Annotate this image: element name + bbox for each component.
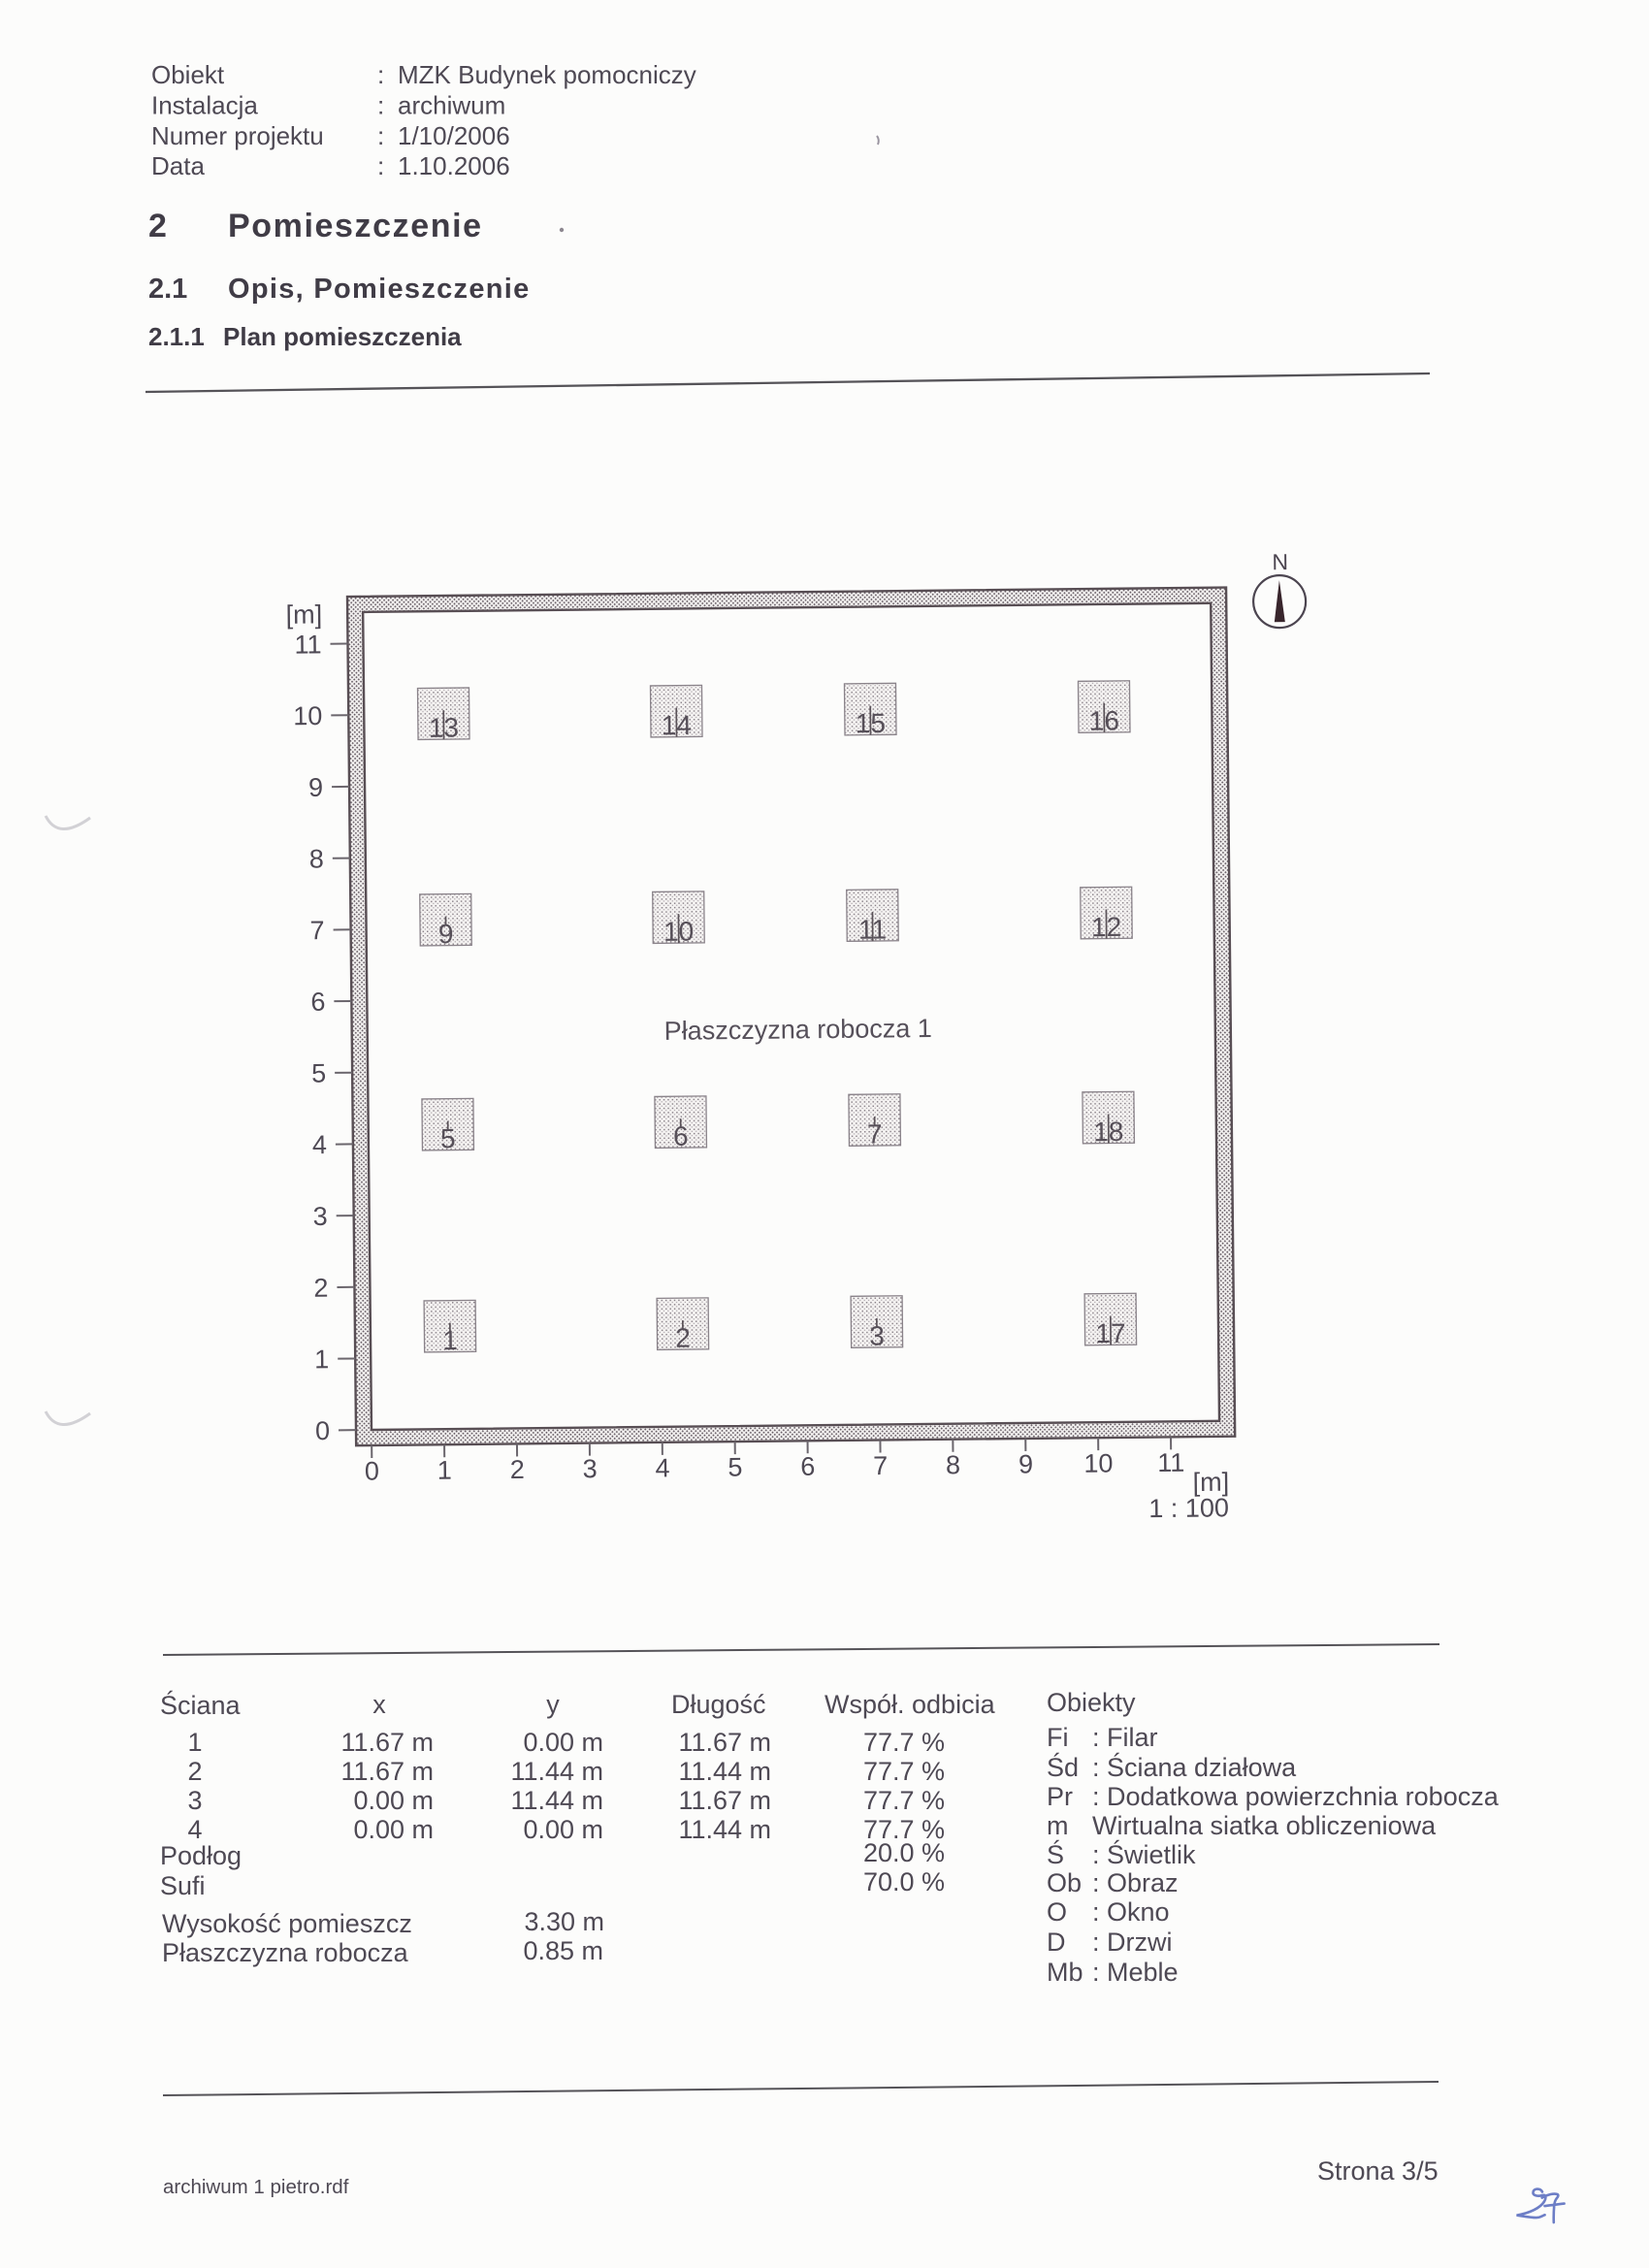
svg-text:4: 4 xyxy=(187,1815,202,1844)
svg-text:10: 10 xyxy=(663,916,694,946)
svg-text:0.00 m: 0.00 m xyxy=(353,1815,434,1844)
svg-text:Pomieszczenie: Pomieszczenie xyxy=(228,208,483,244)
svg-text:11.67 m: 11.67 m xyxy=(678,1786,771,1815)
svg-text:Podłog: Podłog xyxy=(160,1841,242,1870)
svg-text:7: 7 xyxy=(309,916,324,945)
svg-text:Współ. odbicia: Współ. odbicia xyxy=(824,1690,996,1719)
svg-text:11: 11 xyxy=(294,630,321,659)
svg-text:2: 2 xyxy=(148,208,167,244)
svg-text:10: 10 xyxy=(1083,1448,1113,1477)
svg-text:Płaszczyzna robocza: Płaszczyzna robocza xyxy=(162,1938,409,1967)
svg-text:16: 16 xyxy=(1089,705,1119,735)
svg-text:13: 13 xyxy=(429,713,459,743)
svg-text:17: 17 xyxy=(1095,1318,1125,1348)
svg-text:20.0 %: 20.0 % xyxy=(863,1838,945,1867)
svg-text::: : xyxy=(377,151,384,180)
svg-text:MZK Budynek pomocniczy: MZK Budynek pomocniczy xyxy=(398,60,696,89)
svg-text:Śd: Śd xyxy=(1047,1751,1079,1782)
svg-text:Data: Data xyxy=(151,151,205,180)
svg-text:1: 1 xyxy=(314,1345,329,1374)
svg-text:y: y xyxy=(546,1690,560,1719)
svg-text:11.67 m: 11.67 m xyxy=(678,1728,771,1757)
svg-text:Numer projektu: Numer projektu xyxy=(151,121,324,150)
svg-text:2.1.1: 2.1.1 xyxy=(148,322,205,351)
svg-text:11.44 m: 11.44 m xyxy=(510,1757,603,1786)
svg-text:8: 8 xyxy=(946,1450,960,1479)
svg-text:3: 3 xyxy=(582,1454,597,1483)
svg-text:5: 5 xyxy=(440,1123,456,1153)
svg-text:2: 2 xyxy=(313,1274,328,1303)
svg-text:1.10.2006: 1.10.2006 xyxy=(398,151,510,180)
svg-text::: : xyxy=(1092,1753,1100,1782)
svg-text:77.7 %: 77.7 % xyxy=(863,1728,945,1757)
svg-text:m: m xyxy=(1047,1811,1069,1840)
svg-text:Pr: Pr xyxy=(1047,1782,1073,1811)
svg-text:77.7 %: 77.7 % xyxy=(863,1757,945,1786)
svg-text:11.44 m: 11.44 m xyxy=(678,1815,771,1844)
svg-text:11.44 m: 11.44 m xyxy=(678,1757,771,1786)
svg-text:9: 9 xyxy=(308,773,323,802)
svg-text::: : xyxy=(1092,1868,1100,1897)
svg-text:5: 5 xyxy=(727,1452,742,1481)
svg-text:5: 5 xyxy=(311,1058,326,1087)
svg-text:Płaszczyzna robocza 1: Płaszczyzna robocza 1 xyxy=(664,1014,932,1046)
svg-text:11.44 m: 11.44 m xyxy=(510,1786,603,1815)
svg-text:Strona 3/5: Strona 3/5 xyxy=(1317,2156,1439,2186)
svg-text:archiwum 1 pietro.rdf: archiwum 1 pietro.rdf xyxy=(163,2176,349,2198)
svg-text:D: D xyxy=(1047,1928,1066,1957)
svg-text:0: 0 xyxy=(315,1416,330,1445)
svg-text:1: 1 xyxy=(437,1456,452,1485)
svg-text:8: 8 xyxy=(309,844,324,873)
svg-text:6: 6 xyxy=(673,1121,689,1151)
svg-text:Fi: Fi xyxy=(1047,1723,1069,1752)
svg-text:Ś: Ś xyxy=(1047,1838,1064,1869)
svg-text:15: 15 xyxy=(856,708,886,738)
svg-text:9: 9 xyxy=(438,919,454,949)
svg-text:0.85 m: 0.85 m xyxy=(523,1936,603,1965)
svg-text::: : xyxy=(377,60,384,89)
svg-text:Obiekt: Obiekt xyxy=(151,60,225,89)
svg-text:1: 1 xyxy=(187,1728,202,1757)
svg-text::: : xyxy=(1092,1723,1100,1752)
svg-text:3: 3 xyxy=(313,1202,328,1231)
svg-text:3.30 m: 3.30 m xyxy=(524,1907,604,1936)
svg-text:Instalacja: Instalacja xyxy=(151,91,258,120)
svg-text:12: 12 xyxy=(1091,912,1121,942)
svg-text::: : xyxy=(1092,1958,1100,1987)
svg-text:Ściana działowa: Ściana działowa xyxy=(1107,1751,1297,1782)
svg-text:11.67 m: 11.67 m xyxy=(340,1728,434,1757)
svg-text:[m]: [m] xyxy=(286,599,323,629)
svg-text:9: 9 xyxy=(1018,1449,1033,1478)
svg-text:7: 7 xyxy=(873,1451,888,1480)
svg-text:Plan pomieszczenia: Plan pomieszczenia xyxy=(223,322,462,351)
svg-text:11: 11 xyxy=(1157,1448,1184,1477)
svg-text:4: 4 xyxy=(655,1453,669,1482)
svg-text:Drzwi: Drzwi xyxy=(1107,1928,1173,1957)
svg-text:77.7 %: 77.7 % xyxy=(863,1786,945,1815)
svg-text:6: 6 xyxy=(800,1452,815,1481)
svg-text:Ob: Ob xyxy=(1047,1868,1082,1897)
svg-text:7: 7 xyxy=(867,1118,883,1149)
svg-text:11: 11 xyxy=(858,914,887,944)
svg-text::: : xyxy=(377,121,384,150)
svg-text:Długość: Długość xyxy=(671,1690,766,1719)
svg-text:6: 6 xyxy=(310,988,325,1017)
svg-text:3: 3 xyxy=(187,1786,202,1815)
svg-text:archiwum: archiwum xyxy=(398,91,505,120)
svg-text:Ściana: Ściana xyxy=(160,1689,242,1720)
svg-text:Dodatkowa powierzchnia robocza: Dodatkowa powierzchnia robocza xyxy=(1107,1782,1500,1811)
svg-text:4: 4 xyxy=(312,1130,327,1159)
svg-text:14: 14 xyxy=(662,710,692,740)
svg-text:Wysokość pomieszcz: Wysokość pomieszcz xyxy=(162,1909,412,1938)
svg-text:x: x xyxy=(372,1690,386,1719)
svg-text:O: O xyxy=(1047,1897,1067,1927)
svg-text::: : xyxy=(1092,1840,1100,1869)
svg-text::: : xyxy=(1092,1782,1100,1811)
svg-text:0.00 m: 0.00 m xyxy=(353,1786,434,1815)
svg-text:1: 1 xyxy=(442,1325,458,1355)
svg-text:3: 3 xyxy=(869,1320,885,1350)
svg-text:70.0 %: 70.0 % xyxy=(863,1867,945,1896)
svg-text:11.67 m: 11.67 m xyxy=(340,1757,434,1786)
svg-text:Świetlik: Świetlik xyxy=(1107,1838,1196,1869)
svg-text:18: 18 xyxy=(1093,1117,1123,1147)
svg-text::: : xyxy=(1092,1928,1100,1957)
svg-text:2: 2 xyxy=(510,1455,525,1484)
svg-text:Obiekty: Obiekty xyxy=(1047,1688,1136,1717)
svg-text:2.1: 2.1 xyxy=(148,274,187,305)
svg-text:Sufi: Sufi xyxy=(160,1871,206,1900)
svg-text:0.00 m: 0.00 m xyxy=(523,1815,603,1844)
svg-text::: : xyxy=(377,91,384,120)
svg-text:1/10/2006: 1/10/2006 xyxy=(398,121,510,150)
svg-text:2: 2 xyxy=(187,1757,202,1786)
svg-text:Filar: Filar xyxy=(1107,1723,1158,1752)
svg-text:0.00 m: 0.00 m xyxy=(523,1728,603,1757)
svg-text:Wirtualna siatka obliczeniowa: Wirtualna siatka obliczeniowa xyxy=(1092,1811,1437,1840)
svg-text:1 : 100: 1 : 100 xyxy=(1148,1493,1229,1523)
svg-text:2: 2 xyxy=(675,1323,691,1353)
svg-text:Mb: Mb xyxy=(1047,1958,1083,1987)
svg-text:Meble: Meble xyxy=(1107,1958,1179,1987)
svg-text:0: 0 xyxy=(365,1456,379,1485)
svg-text::: : xyxy=(1092,1897,1100,1927)
svg-text:N: N xyxy=(1272,549,1288,574)
svg-text:Okno: Okno xyxy=(1107,1897,1170,1927)
svg-text:Obraz: Obraz xyxy=(1107,1868,1179,1897)
svg-text:10: 10 xyxy=(293,701,322,730)
svg-text:Opis, Pomieszczenie: Opis, Pomieszczenie xyxy=(228,274,531,305)
